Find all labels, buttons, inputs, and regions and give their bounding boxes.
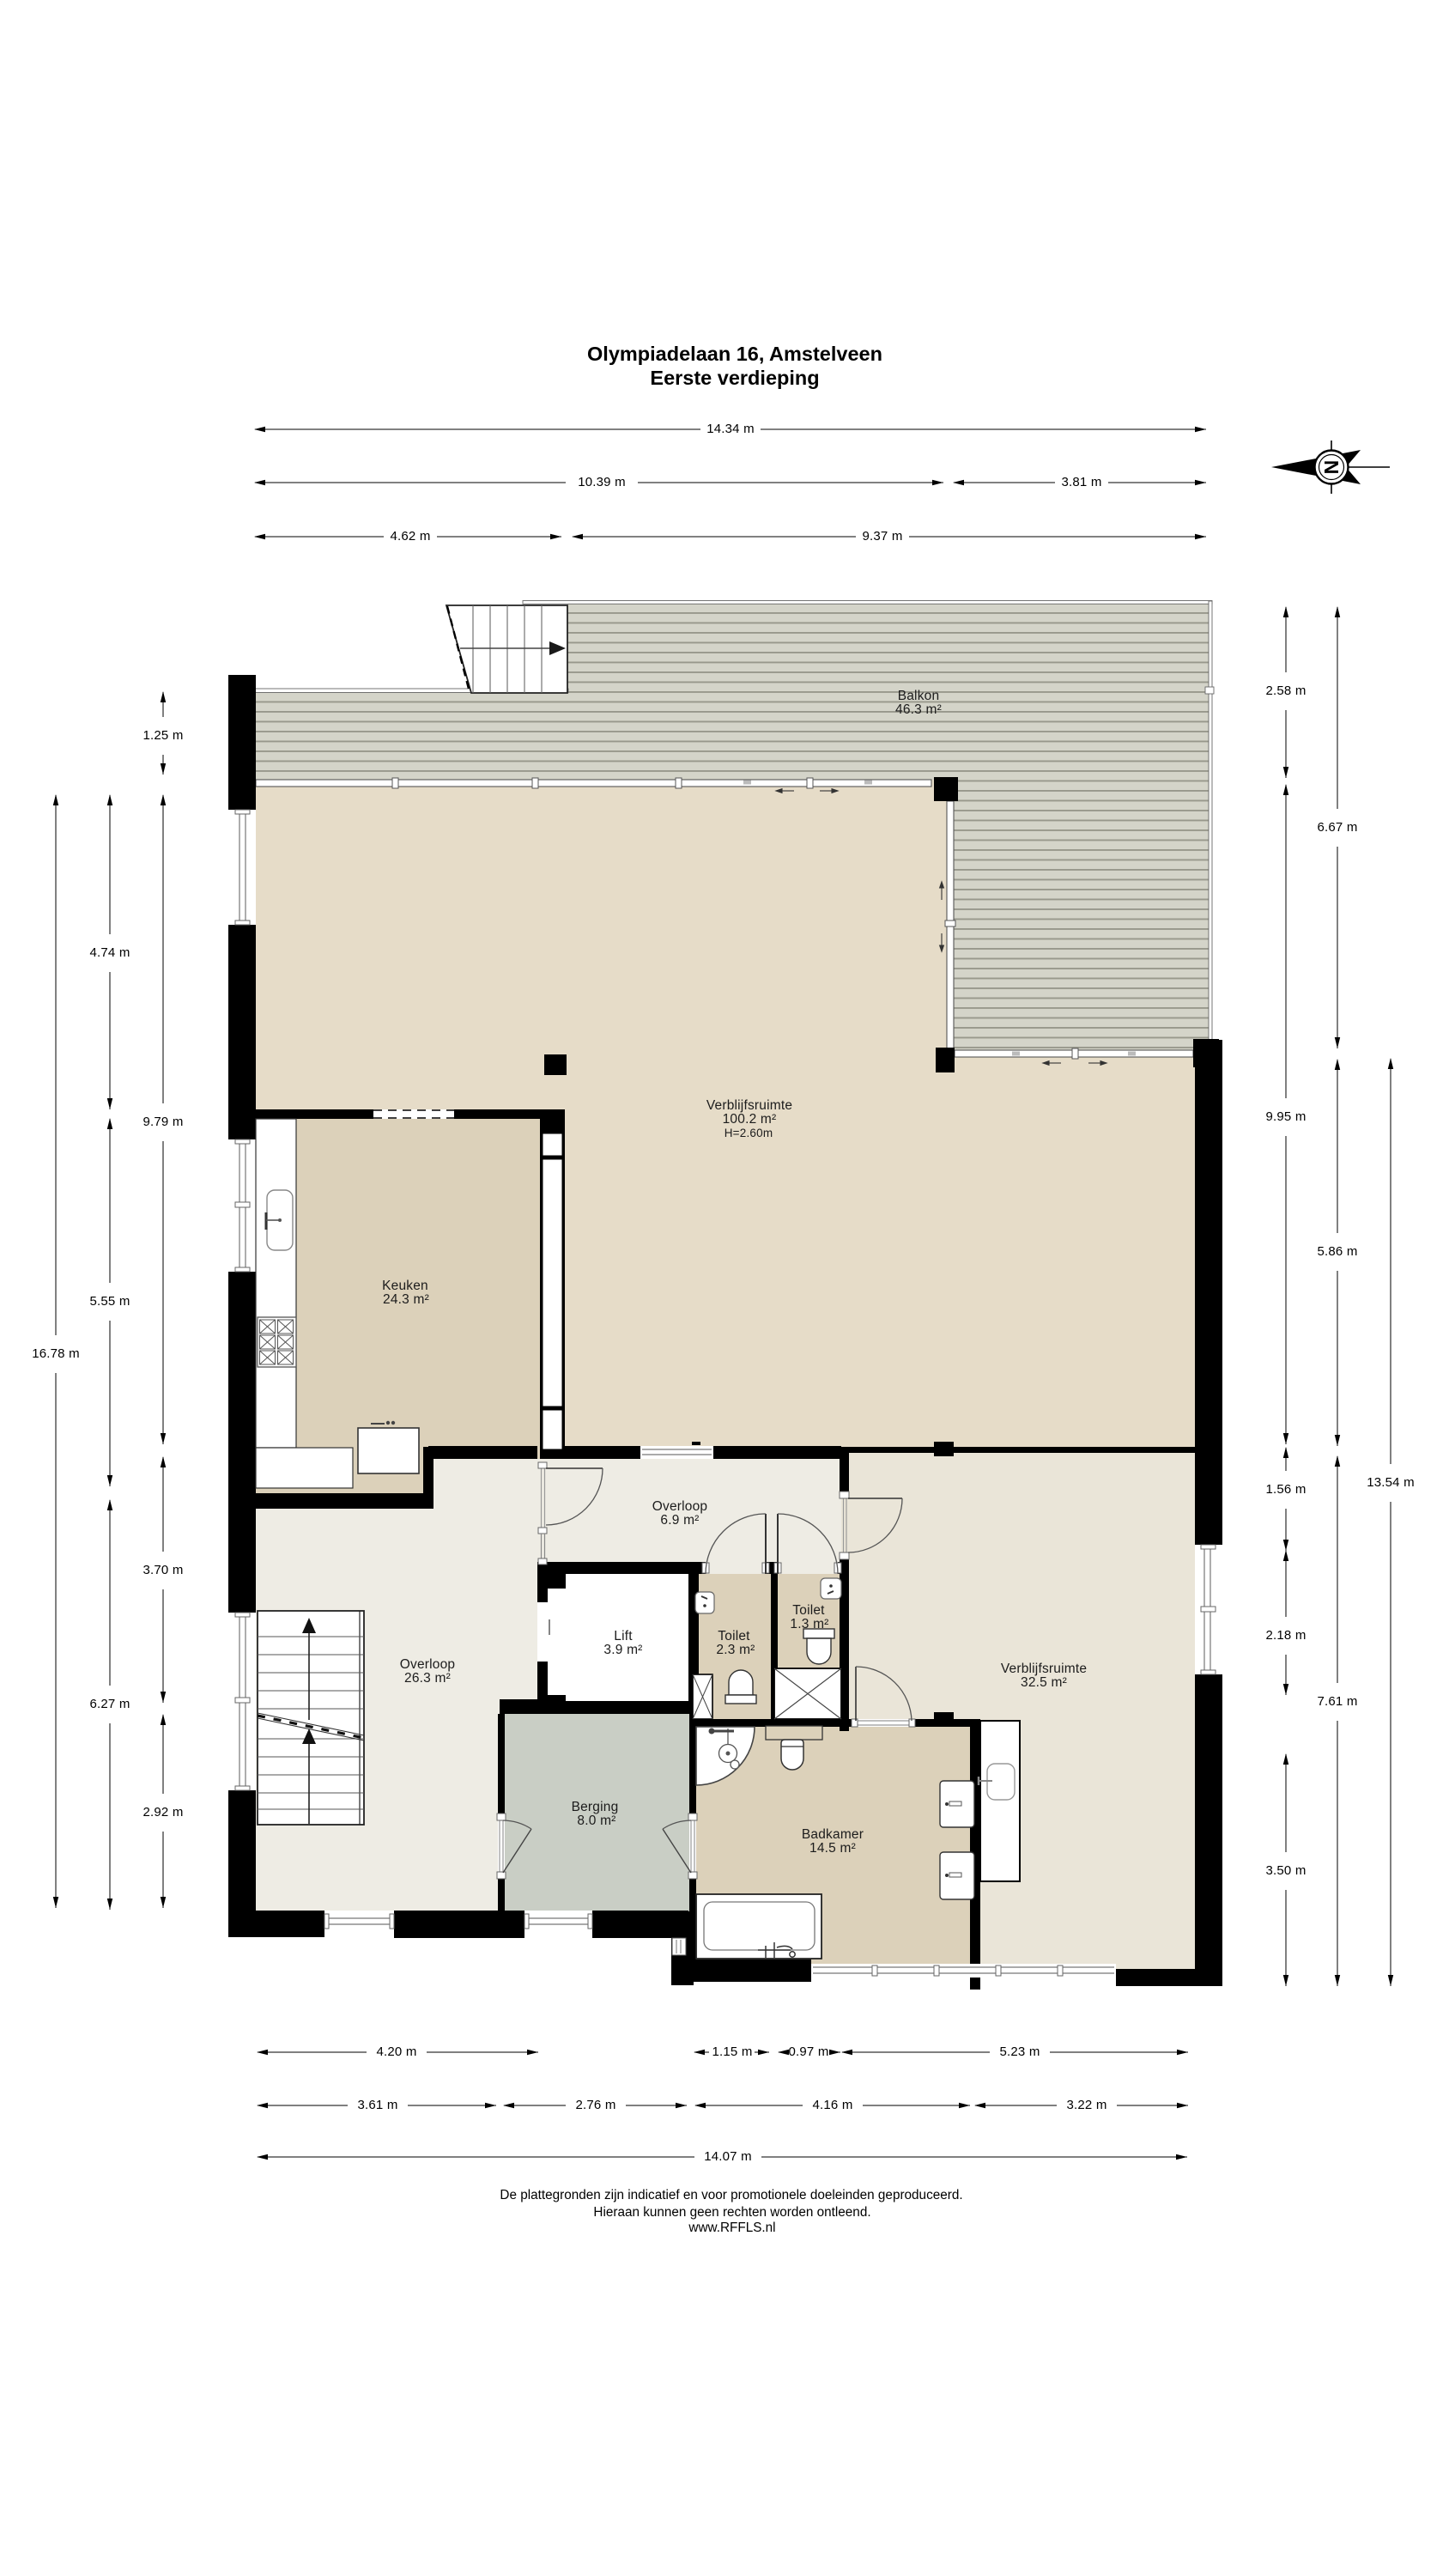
svg-text:13.54 m: 13.54 m bbox=[1367, 1475, 1415, 1490]
svg-text:3.9 m²: 3.9 m² bbox=[603, 1643, 642, 1657]
svg-text:3.70 m: 3.70 m bbox=[142, 1563, 183, 1577]
svg-text:6.67 m: 6.67 m bbox=[1317, 820, 1357, 835]
svg-text:3.81 m: 3.81 m bbox=[1061, 475, 1101, 489]
svg-text:Olympiadelaan 16, Amstelveen: Olympiadelaan 16, Amstelveen bbox=[587, 343, 882, 365]
svg-text:H=2.60m: H=2.60m bbox=[724, 1127, 773, 1139]
svg-text:14.34 m: 14.34 m bbox=[706, 422, 755, 436]
svg-text:4.20 m: 4.20 m bbox=[376, 2044, 416, 2059]
svg-text:4.16 m: 4.16 m bbox=[812, 2098, 852, 2112]
svg-text:Verblijfsruimte: Verblijfsruimte bbox=[706, 1098, 792, 1113]
svg-text:De plattegronden zijn indicati: De plattegronden zijn indicatief en voor… bbox=[500, 2188, 962, 2202]
svg-text:Berging: Berging bbox=[572, 1800, 619, 1814]
svg-text:46.3 m²: 46.3 m² bbox=[895, 702, 942, 717]
svg-text:2.18 m: 2.18 m bbox=[1265, 1628, 1306, 1643]
svg-text:9.37 m: 9.37 m bbox=[862, 529, 902, 544]
svg-text:16.78 m: 16.78 m bbox=[32, 1346, 80, 1361]
svg-text:2.92 m: 2.92 m bbox=[142, 1805, 183, 1820]
svg-text:6.9 m²: 6.9 m² bbox=[660, 1513, 699, 1528]
svg-text:Badkamer: Badkamer bbox=[802, 1827, 864, 1842]
svg-text:2.76 m: 2.76 m bbox=[575, 2098, 615, 2112]
svg-text:1.15 m: 1.15 m bbox=[712, 2044, 752, 2059]
svg-text:0.97 m: 0.97 m bbox=[788, 2044, 828, 2059]
svg-text:4.74 m: 4.74 m bbox=[89, 945, 130, 960]
svg-text:Hieraan kunnen geen rechten wo: Hieraan kunnen geen rechten worden ontle… bbox=[593, 2205, 870, 2220]
svg-text:100.2 m²: 100.2 m² bbox=[723, 1112, 777, 1127]
svg-text:Verblijfsruimte: Verblijfsruimte bbox=[1001, 1662, 1087, 1676]
svg-text:9.79 m: 9.79 m bbox=[142, 1115, 183, 1129]
svg-text:5.86 m: 5.86 m bbox=[1317, 1244, 1357, 1259]
svg-text:9.95 m: 9.95 m bbox=[1265, 1109, 1306, 1124]
svg-text:14.07 m: 14.07 m bbox=[704, 2149, 752, 2164]
svg-text:1.25 m: 1.25 m bbox=[142, 728, 183, 743]
svg-text:Toilet: Toilet bbox=[718, 1629, 750, 1643]
svg-text:4.62 m: 4.62 m bbox=[390, 529, 430, 544]
svg-text:24.3 m²: 24.3 m² bbox=[383, 1292, 429, 1307]
svg-text:26.3 m²: 26.3 m² bbox=[404, 1671, 451, 1686]
svg-text:Overloop: Overloop bbox=[652, 1499, 708, 1514]
svg-text:N: N bbox=[1320, 460, 1343, 475]
svg-text:www.RFFLS.nl: www.RFFLS.nl bbox=[688, 2221, 775, 2235]
svg-text:14.5 m²: 14.5 m² bbox=[809, 1841, 856, 1856]
svg-text:2.3 m²: 2.3 m² bbox=[716, 1643, 755, 1657]
svg-text:1.56 m: 1.56 m bbox=[1265, 1482, 1306, 1497]
svg-text:8.0 m²: 8.0 m² bbox=[577, 1814, 615, 1828]
svg-text:2.58 m: 2.58 m bbox=[1265, 683, 1306, 698]
svg-text:3.61 m: 3.61 m bbox=[357, 2098, 397, 2112]
svg-text:6.27 m: 6.27 m bbox=[89, 1697, 130, 1711]
svg-text:Toilet: Toilet bbox=[792, 1603, 825, 1618]
svg-text:7.61 m: 7.61 m bbox=[1317, 1694, 1357, 1709]
svg-text:5.23 m: 5.23 m bbox=[999, 2044, 1040, 2059]
svg-text:Overloop: Overloop bbox=[400, 1657, 456, 1672]
svg-text:Keuken: Keuken bbox=[382, 1279, 428, 1293]
svg-text:Eerste verdieping: Eerste verdieping bbox=[650, 367, 819, 389]
svg-text:32.5 m²: 32.5 m² bbox=[1021, 1675, 1067, 1690]
svg-text:3.22 m: 3.22 m bbox=[1066, 2098, 1106, 2112]
svg-text:1.3 m²: 1.3 m² bbox=[790, 1617, 828, 1631]
svg-text:5.55 m: 5.55 m bbox=[89, 1294, 130, 1309]
svg-text:3.50 m: 3.50 m bbox=[1265, 1863, 1306, 1878]
svg-text:Balkon: Balkon bbox=[898, 689, 940, 703]
svg-text:Lift: Lift bbox=[614, 1629, 633, 1643]
svg-text:10.39 m: 10.39 m bbox=[578, 475, 626, 489]
